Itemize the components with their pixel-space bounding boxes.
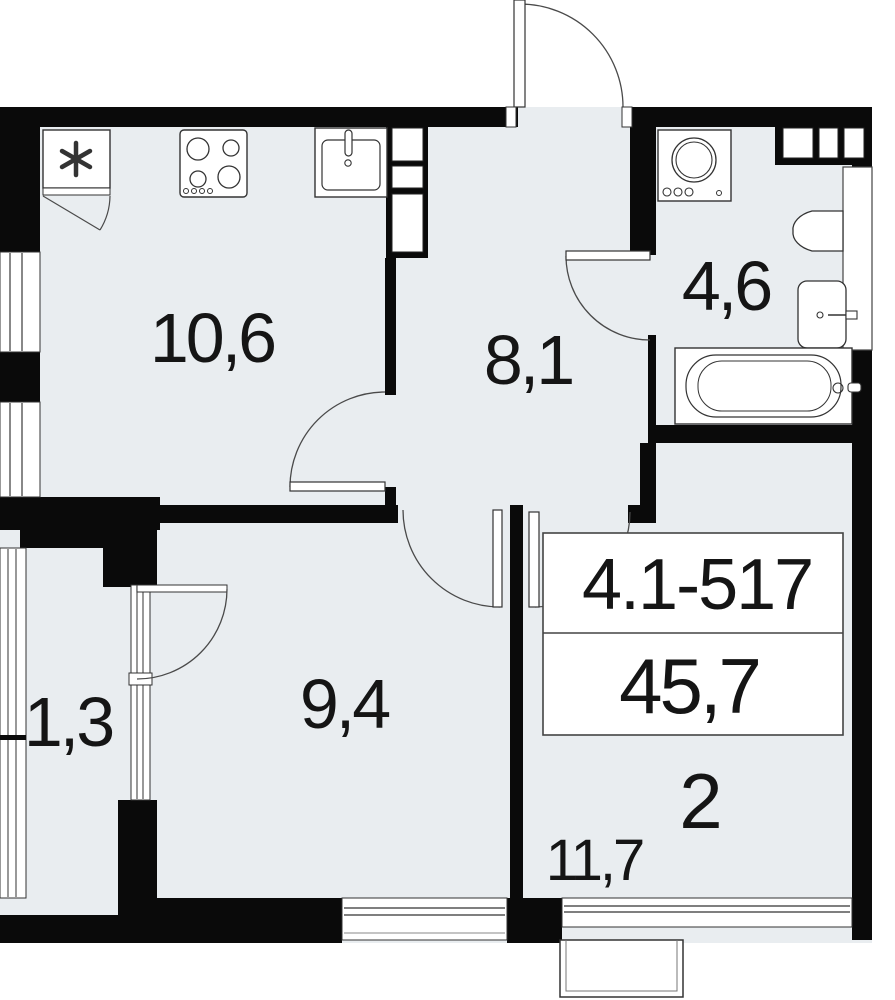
balcony-partition-window — [129, 585, 152, 800]
exterior-balcony — [560, 940, 683, 997]
balcony-window-left — [0, 548, 26, 898]
room-label-living-room: 11,7 — [546, 832, 643, 890]
washing-machine-icon — [658, 130, 731, 201]
unit-number-label: 4.1-517 — [582, 549, 812, 621]
bedroom-window — [342, 898, 507, 940]
toilet-icon — [793, 211, 843, 251]
floor-plan: 10,6 8,1 4,6 9,4 1,3 11,7 4.1-517 45,7 2 — [0, 0, 895, 1000]
plumbing-chase — [843, 167, 872, 350]
room-label-bathroom: 4,6 — [682, 251, 770, 321]
floor-plan-drawing — [0, 0, 895, 1000]
kitchen-window-upper — [0, 252, 40, 352]
room-label-balcony: 1,3 — [24, 687, 112, 757]
room-label-hallway: 8,1 — [484, 325, 572, 395]
kitchen-window-lower — [0, 402, 40, 497]
bathtub-icon — [675, 348, 861, 424]
vent-shaft-bathroom — [783, 128, 864, 158]
living-room-window — [562, 898, 852, 927]
stove-icon — [180, 130, 247, 197]
unit-total-area-label: 45,7 — [619, 647, 759, 725]
unit-rooms-count-label: 2 — [679, 762, 720, 840]
room-label-bedroom: 9,4 — [300, 669, 388, 739]
room-label-kitchen: 10,6 — [150, 303, 274, 373]
kitchen-sink-icon — [315, 128, 387, 197]
